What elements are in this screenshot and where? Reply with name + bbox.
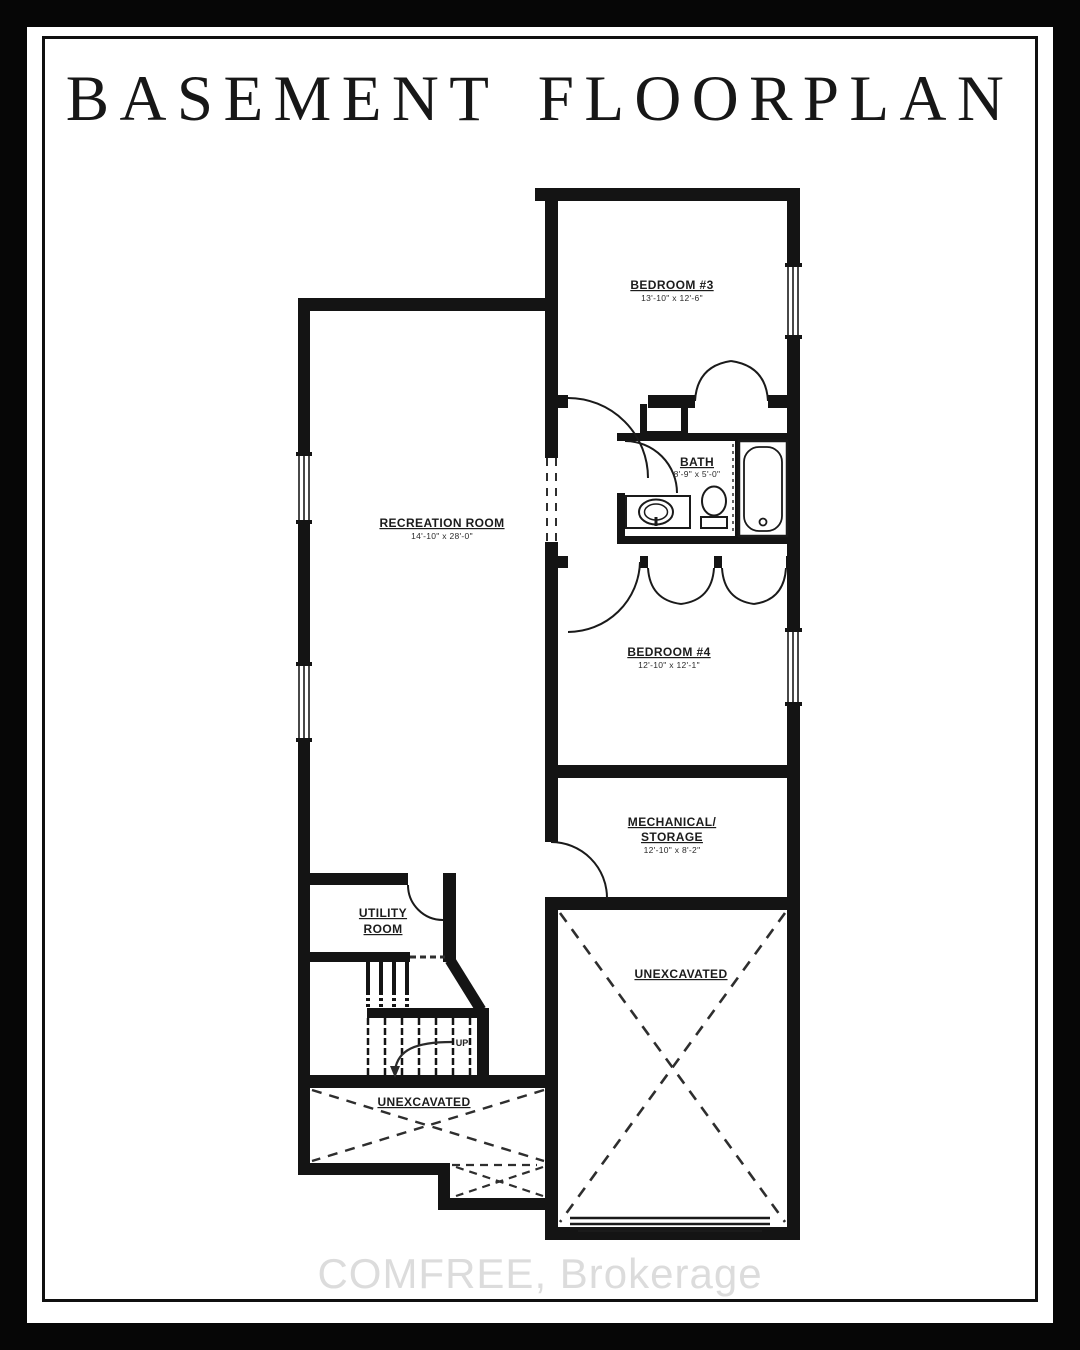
label-utility-line2: ROOM bbox=[364, 922, 403, 936]
dims-bedroom3: 13'-10" x 12'-6" bbox=[641, 293, 703, 303]
window-recroom-left-upper bbox=[296, 452, 312, 524]
double-door-bedroom4-closet1 bbox=[648, 568, 714, 604]
door-mechanical bbox=[551, 842, 607, 898]
label-bedroom4: BEDROOM #4 bbox=[627, 645, 710, 659]
double-door-bedroom4-closet2 bbox=[722, 568, 786, 604]
label-bath: BATH bbox=[680, 455, 714, 469]
window-recroom-left-lower bbox=[296, 662, 312, 742]
staircase: UP bbox=[368, 962, 470, 1078]
door-utility bbox=[408, 885, 443, 920]
stair-direction-arrow bbox=[390, 1042, 452, 1078]
vanity-sink bbox=[626, 496, 690, 528]
stair-treads-upper bbox=[368, 962, 407, 1008]
door-bedroom4 bbox=[568, 562, 640, 632]
door-bath bbox=[625, 441, 677, 493]
label-mechanical-line1: MECHANICAL/ bbox=[628, 815, 717, 829]
dims-recreation-room: 14'-10" x 28'-0" bbox=[411, 531, 473, 541]
window-bedroom3-right bbox=[785, 263, 802, 339]
door-symbols bbox=[408, 361, 786, 920]
label-utility-line1: UTILITY bbox=[359, 906, 407, 920]
bathtub bbox=[739, 441, 787, 536]
dims-bedroom4: 12'-10" x 12'-1" bbox=[638, 660, 700, 670]
dims-bath: 8'-9" x 5'-0" bbox=[674, 469, 721, 479]
floorplan-page: BASEMENT FLOORPLAN bbox=[0, 0, 1080, 1350]
walls bbox=[298, 188, 800, 1240]
double-door-bedroom3 bbox=[695, 361, 768, 401]
label-unexcavated-front: UNEXCAVATED bbox=[377, 1095, 470, 1109]
dims-mechanical: 12'-10" x 8'-2" bbox=[644, 845, 701, 855]
toilet bbox=[701, 487, 727, 529]
floorplan-drawing: UP BEDROOM #3 13'-10" x 12'-6" bbox=[0, 0, 1080, 1350]
stairs-up-label: UP bbox=[456, 1038, 469, 1048]
unexcavated-cross-rear bbox=[560, 913, 785, 1222]
window-bedroom4-right bbox=[785, 628, 802, 706]
label-mechanical-line2: STORAGE bbox=[641, 830, 703, 844]
label-bedroom3: BEDROOM #3 bbox=[630, 278, 713, 292]
brokerage-watermark: COMFREE, Brokerage bbox=[0, 1250, 1080, 1298]
label-recreation-room: RECREATION ROOM bbox=[379, 516, 504, 530]
label-unexcavated-rear: UNEXCAVATED bbox=[634, 967, 727, 981]
